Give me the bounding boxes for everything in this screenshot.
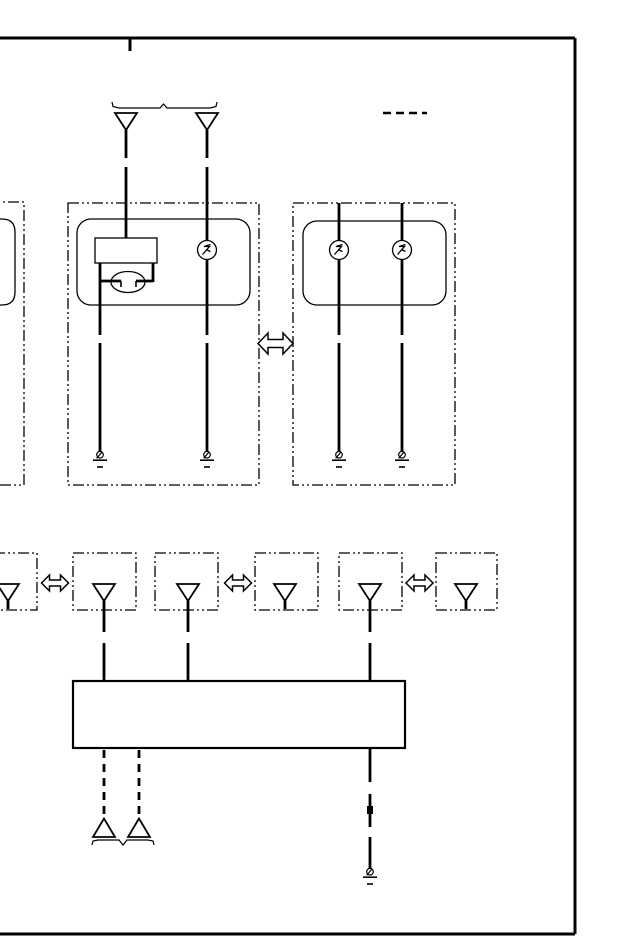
harness-continuation-arrow-icon (42, 575, 69, 591)
inline-connector-box (436, 553, 497, 610)
component-box-right (293, 203, 455, 485)
junction-box (73, 681, 405, 748)
ground-icon (363, 868, 377, 884)
component-enclosure (68, 203, 259, 485)
inline-connector-box (339, 553, 402, 681)
ground-icon (332, 451, 346, 467)
bulb-icon (198, 241, 217, 260)
male-connector-icon (177, 584, 199, 601)
component-enclosure (293, 203, 455, 485)
inline-connector-row (0, 553, 497, 681)
inline-connector-box (73, 553, 136, 681)
bulb-icon (330, 241, 349, 260)
ground-icon (200, 451, 214, 467)
wiring-diagram-canvas (0, 0, 640, 950)
dual-filament-bulb-icon (95, 238, 157, 293)
male-connector-up-icon (93, 819, 115, 838)
component-body (77, 219, 250, 305)
male-connector-up-icon (128, 819, 150, 838)
male-connector-icon (115, 113, 137, 130)
harness-continuation-arrow-icon (225, 575, 252, 591)
harness-underbrace (92, 840, 154, 845)
ground-run (363, 748, 377, 884)
ground-icon (93, 451, 107, 467)
bulb-icon (393, 241, 412, 260)
inline-connector-box (255, 553, 318, 610)
male-connector-icon (274, 584, 296, 601)
component-body (303, 221, 446, 305)
component-box-left-clipped (0, 202, 24, 485)
male-connector-icon (93, 584, 115, 601)
harness-continuation-arrow-icon (406, 575, 433, 591)
harness-continuation-arrow-icon (258, 333, 293, 354)
splice-dot (367, 806, 373, 814)
male-connector-icon (196, 113, 218, 130)
harness-overbrace (112, 102, 217, 108)
male-connector-icon (0, 584, 19, 601)
inline-connector-box (0, 553, 37, 610)
component-box-center (68, 203, 259, 485)
male-connector-icon (455, 584, 477, 601)
inline-connector-box (155, 553, 218, 681)
ground-icon (395, 451, 409, 467)
dashed-lead-group (92, 750, 154, 845)
wiring-diagram-page (0, 0, 640, 950)
male-connector-icon (359, 584, 381, 601)
